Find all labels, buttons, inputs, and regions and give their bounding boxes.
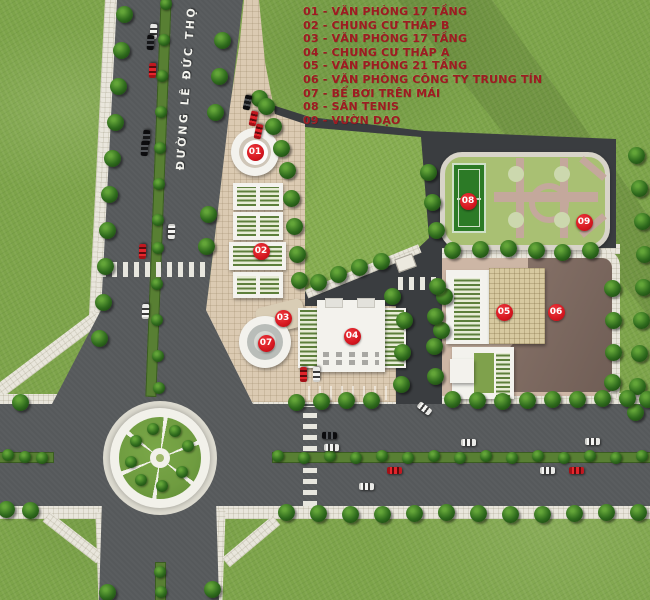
tree-icon [363,392,380,409]
tree-icon [469,392,486,409]
tree-icon [634,213,650,230]
legend-item-08: 08 - SÂN TENIS [303,100,542,114]
tree-icon [438,504,455,521]
tree-icon [582,242,599,259]
car [540,467,555,474]
car [242,94,252,110]
tree-icon [12,394,29,411]
tree-icon [330,266,347,283]
tree-icon [198,238,215,255]
legend: 01 - VĂN PHÒNG 17 TẦNG02 - CHUNG CƯ THÁP… [303,5,542,127]
tree-icon [97,258,114,275]
tree-icon [426,338,443,355]
building-marker-06[interactable]: 06 [548,304,565,321]
tree-icon [338,392,355,409]
car [148,62,156,77]
shrub-icon [156,70,168,82]
tree-icon [534,506,551,523]
shrub-icon [584,450,596,462]
tree-icon [116,6,133,23]
shrub-icon [176,466,188,478]
tree-icon [265,118,282,135]
legend-item-05: 05 - VĂN PHÒNG 21 TẦNG [303,59,542,73]
tree-icon [99,584,116,600]
tree-icon [279,162,296,179]
tree-icon [95,294,112,311]
tree-icon [605,344,622,361]
shrub-icon [135,474,147,486]
tree-icon [258,98,275,115]
shrub-icon [480,450,492,462]
tree-icon [428,222,445,239]
tree-icon [639,391,650,408]
tree-icon [605,312,622,329]
shrub-icon [610,452,622,464]
tree-icon [214,32,231,49]
tree-icon [500,240,517,257]
building-marker-04[interactable]: 04 [344,328,361,345]
shrub-icon [169,425,181,437]
building-marker-02[interactable]: 02 [253,243,270,260]
shrub-icon [506,452,518,464]
shrub-icon [160,0,172,10]
tree-icon [91,330,108,347]
car [140,140,148,155]
legend-item-01: 01 - VĂN PHÒNG 17 TẦNG [303,5,542,19]
tree-icon [636,246,650,263]
legend-item-03: 03 - VĂN PHÒNG 17 TẦNG [303,32,542,46]
tree-icon [273,140,290,157]
tree-icon [519,392,536,409]
shrub-icon [151,278,163,290]
tree-icon [200,206,217,223]
shrub-icon [402,452,414,464]
tree-icon [283,190,300,207]
shrub-icon [156,480,168,492]
tree-icon [427,368,444,385]
legend-item-07: 07 - BỂ BƠI TRÊN MÁI [303,87,542,101]
tree-icon [373,253,390,270]
tree-icon [594,390,611,407]
tree-icon [429,278,446,295]
shrub-icon [182,440,194,452]
shrub-icon [298,452,310,464]
building-marker-07[interactable]: 07 [258,335,275,352]
shrub-icon [36,452,48,464]
tree-icon [631,180,648,197]
tree-icon [107,114,124,131]
legend-item-09: 09 - VƯỜN DẠO [303,114,542,128]
shrub-icon [152,350,164,362]
tree-icon [427,308,444,325]
building-marker-03[interactable]: 03 [275,310,292,327]
building-marker-08[interactable]: 08 [460,193,477,210]
shrub-icon [151,314,163,326]
shrub-icon [2,449,14,461]
site-plan-map: 010203040506070809 01 - VĂN PHÒNG 17 TẦN… [0,0,650,600]
shrub-icon [324,450,336,462]
car [138,243,146,258]
shrub-icon [147,423,159,435]
building-marker-01[interactable]: 01 [247,144,264,161]
shrub-icon [154,142,166,154]
tree-icon [110,78,127,95]
legend-item-02: 02 - CHUNG CƯ THÁP B [303,19,542,33]
shrub-icon [454,452,466,464]
tree-icon [286,218,303,235]
shrub-icon [428,450,440,462]
shrub-icon [19,451,31,463]
tree-icon [0,501,15,518]
tree-icon [342,506,359,523]
shrub-icon [376,450,388,462]
building-marker-09[interactable]: 09 [576,214,593,231]
tree-icon [104,150,121,167]
tree-icon [288,394,305,411]
tree-icon [502,506,519,523]
car [146,34,154,49]
shrub-icon [350,452,362,464]
tree-icon [374,506,391,523]
tree-icon [470,505,487,522]
tree-icon [394,344,411,361]
tree-icon [528,242,545,259]
tree-icon [351,259,368,276]
car [358,482,373,489]
car [167,223,175,238]
tree-icon [310,274,327,291]
car [585,438,600,445]
car [461,439,476,446]
tree-icon [396,312,413,329]
shrub-icon [532,450,544,462]
tree-icon [204,581,221,598]
tree-icon [633,312,650,329]
tree-icon [291,272,308,289]
car [323,443,338,450]
tree-icon [554,244,571,261]
shrub-icon [152,242,164,254]
tree-icon [99,222,116,239]
car [313,367,320,382]
shrub-icon [636,450,648,462]
tree-icon [604,374,621,391]
tree-icon [630,504,647,521]
tree-icon [544,391,561,408]
tree-icon [472,241,489,258]
legend-item-06: 06 - VĂN PHÒNG CÔNG TY TRUNG TÍN [303,73,542,87]
car [387,467,402,474]
tree-icon [313,393,330,410]
building-marker-05[interactable]: 05 [496,304,513,321]
tree-icon [569,391,586,408]
shrub-icon [155,586,167,598]
tree-icon [628,147,645,164]
car [141,303,149,318]
tree-icon [420,164,437,181]
tree-icon [384,288,401,305]
tree-icon [310,505,327,522]
tree-icon [494,393,511,410]
shrub-icon [158,34,170,46]
tree-icon [444,242,461,259]
tree-icon [635,279,650,296]
tree-icon [207,104,224,121]
tree-icon [424,194,441,211]
shrub-icon [558,452,570,464]
tree-icon [604,280,621,297]
shrub-icon [125,456,137,468]
shrub-icon [272,450,284,462]
tree-icon [211,68,228,85]
legend-item-04: 04 - CHUNG CƯ THÁP A [303,46,542,60]
tree-icon [113,42,130,59]
tree-icon [406,505,423,522]
tree-icon [619,390,636,407]
shrub-icon [155,106,167,118]
tree-icon [101,186,118,203]
tree-icon [566,505,583,522]
car [416,401,432,416]
tree-icon [598,504,615,521]
tree-icon [22,502,39,519]
tree-icon [289,246,306,263]
shrub-icon [130,435,142,447]
shrub-icon [154,566,166,578]
shrub-icon [152,214,164,226]
tree-icon [393,376,410,393]
tree-icon [631,345,648,362]
shrub-icon [153,178,165,190]
tree-icon [278,504,295,521]
car [300,367,307,382]
shrub-icon [153,382,165,394]
tree-icon [444,391,461,408]
car [321,431,336,438]
car [569,467,584,474]
